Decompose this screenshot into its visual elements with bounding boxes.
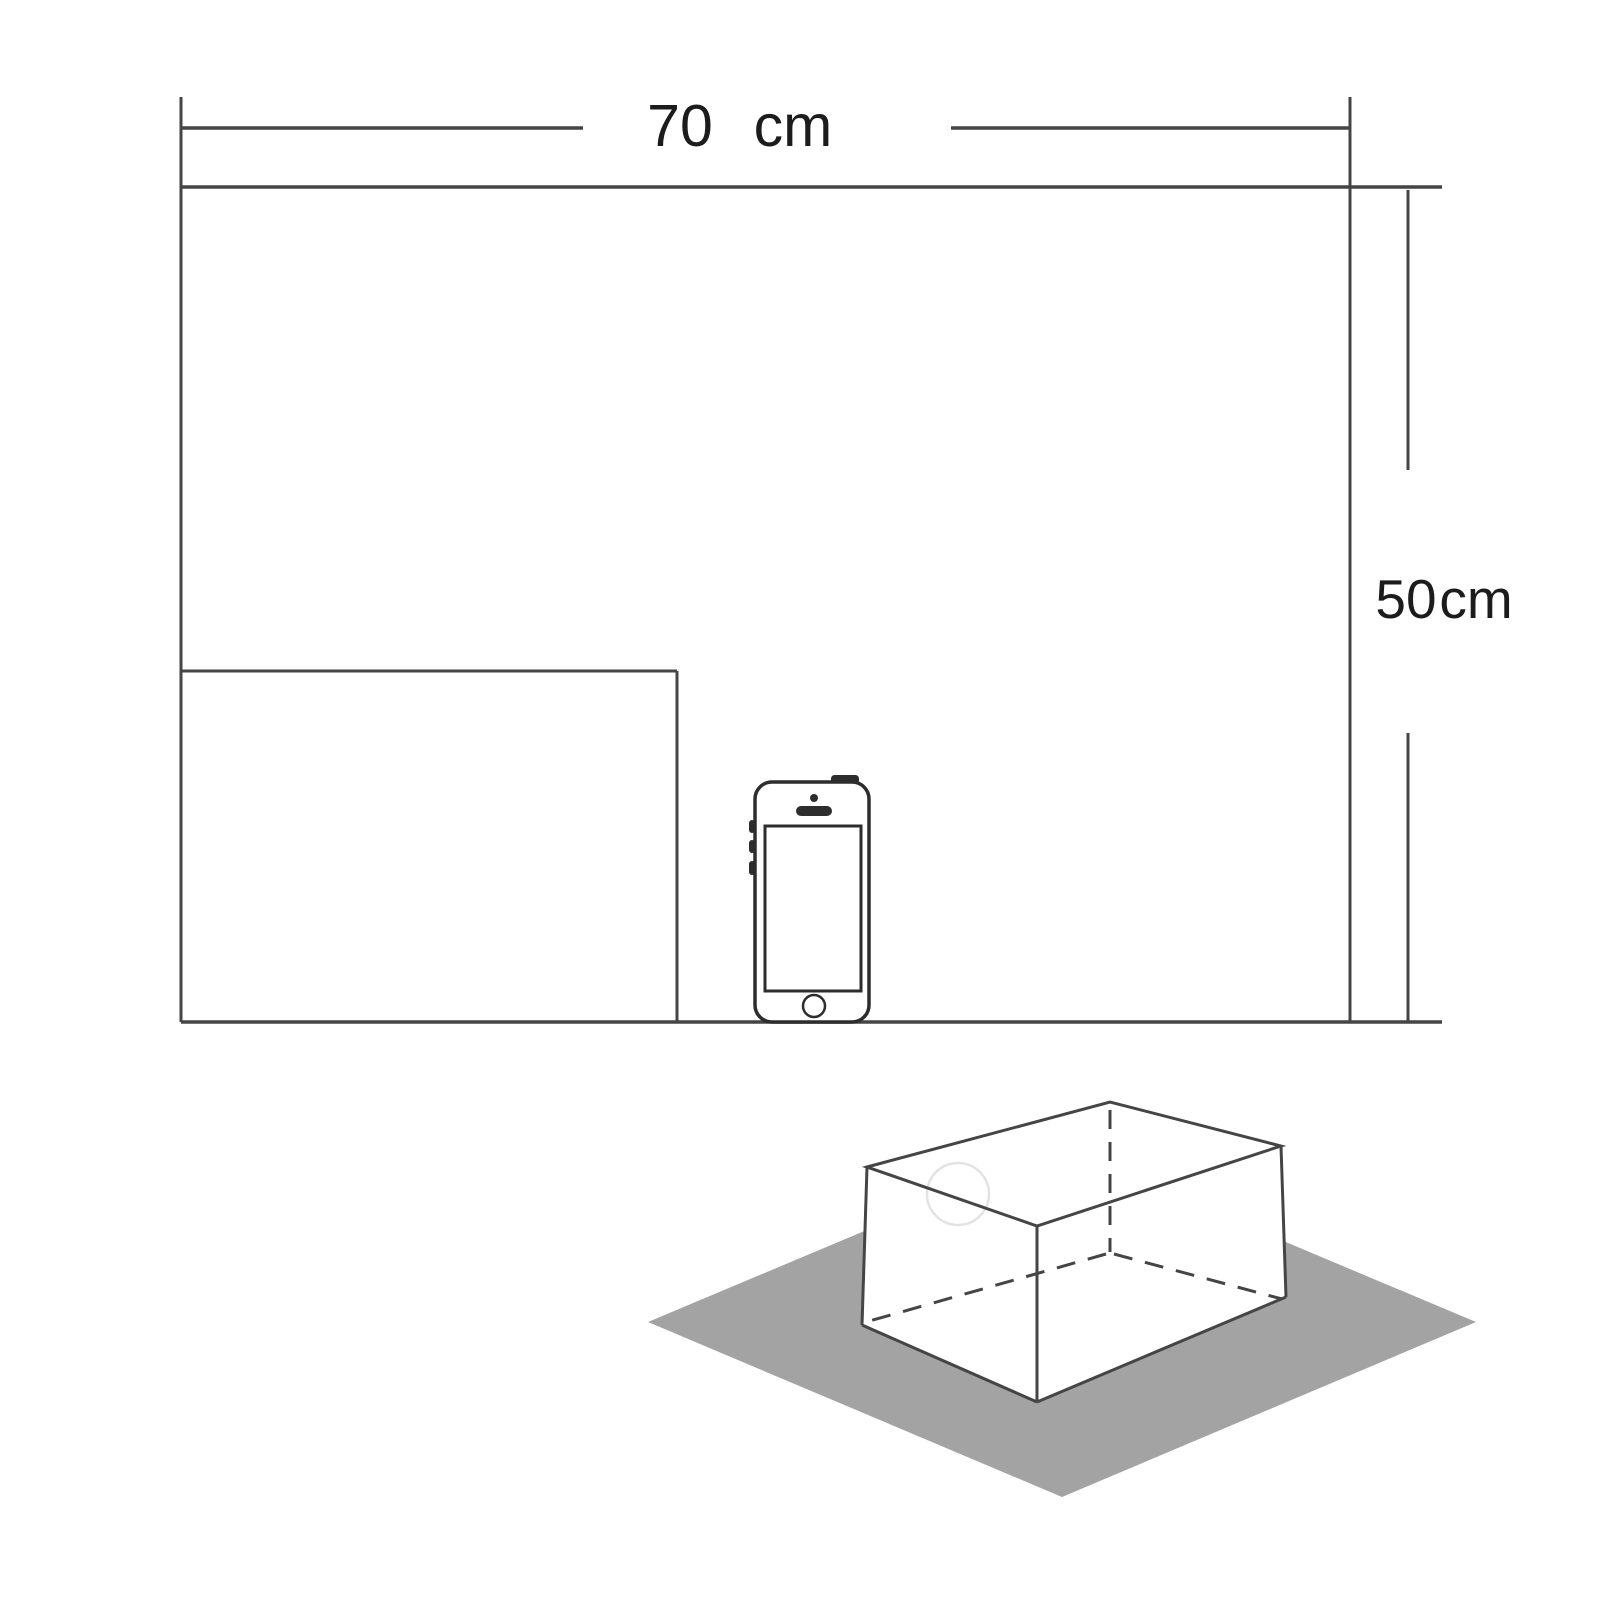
diagram-canvas: 70 cm 50 cm bbox=[0, 0, 1600, 1600]
width-unit-label: cm bbox=[754, 93, 833, 159]
earpiece-speaker-icon bbox=[796, 806, 832, 816]
smartphone-body-group bbox=[755, 782, 869, 1022]
front-camera-icon bbox=[810, 794, 818, 802]
smartphone-icon bbox=[749, 775, 869, 1022]
height-unit-label: cm bbox=[1439, 568, 1512, 630]
dimension-labels-group: 70 cm 50 cm bbox=[647, 93, 1512, 630]
smartphone-screen bbox=[765, 826, 861, 991]
width-value-label: 70 bbox=[647, 93, 713, 159]
height-value-label: 50 bbox=[1375, 568, 1436, 630]
dimension-diagram-page: 70 cm 50 cm bbox=[0, 0, 1600, 1600]
